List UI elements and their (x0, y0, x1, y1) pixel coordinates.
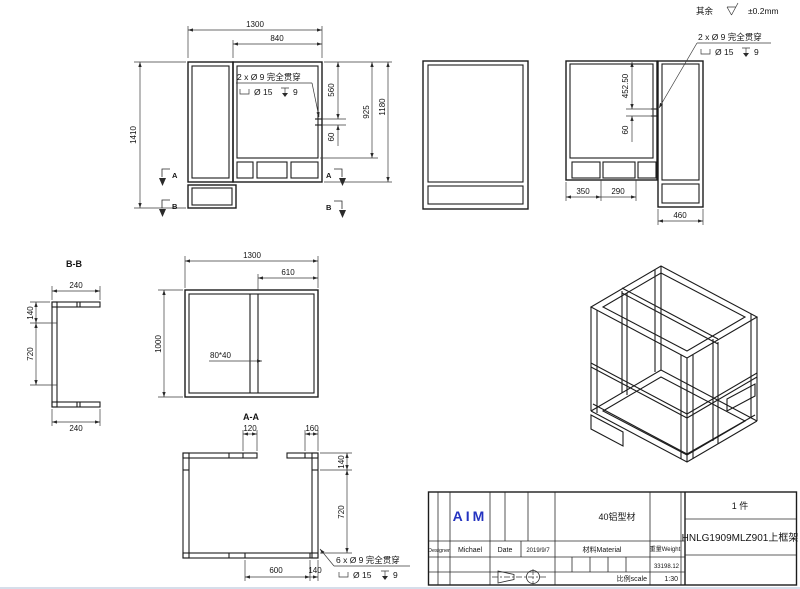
bb-section-linework (52, 302, 100, 407)
dim-side-seg-mid: 290 (611, 187, 625, 196)
bb-section-label: B-B (66, 259, 82, 269)
dim-top-depth: 1000 (154, 335, 163, 353)
isometric-view (591, 266, 757, 462)
scale-label: 比例scale (617, 574, 647, 583)
dim-aa-bottom-span: 600 (269, 566, 283, 575)
side-hole-callout: 2 x Ø 9 完全贯穿 Ø 15 9 (659, 32, 771, 108)
dim-aa-tab-left: 120 (243, 424, 257, 433)
dim-bb-offset-top: 140 (26, 306, 35, 320)
date-value: 2019/9/7 (526, 548, 550, 554)
side-view-linework (566, 61, 703, 207)
dim-front-height-opening: 925 (362, 105, 371, 119)
surface-finish-icon (727, 3, 738, 15)
hole-callout-depth: 9 (754, 47, 759, 57)
dim-bb-arm-top: 240 (69, 281, 83, 290)
cad-drawing-canvas: 其余 ±0.2mm 1300 840 (0, 0, 800, 589)
aa-section-linework (183, 453, 318, 558)
dim-front-height-right: 1180 (378, 98, 387, 116)
hole-callout-cbore: Ø 15 (254, 87, 273, 97)
dim-front-width-opening: 840 (270, 34, 284, 43)
front-view-linework (188, 62, 322, 208)
dim-aa-offset-top: 140 (337, 455, 346, 469)
section-marker-b-right: B (326, 201, 346, 218)
dim-top-profile: 80*40 (210, 351, 231, 360)
scale-value: 1:30 (664, 576, 678, 583)
hole-callout-cbore: Ø 15 (353, 570, 372, 580)
dim-side-hole-top: 452.50 (621, 73, 630, 98)
aa-section-view: A-A 120 160 1 (183, 412, 410, 581)
section-letter-b: B (326, 203, 332, 212)
front-view-dimensions: 1300 840 1410 560 60 925 1180 (129, 20, 392, 208)
material-type: 40铝型材 (598, 511, 635, 522)
counterbore-icon (701, 49, 710, 54)
date-label: Date (498, 547, 513, 554)
company-logo-text: AIM (453, 508, 488, 524)
section-marker-a-left: A (159, 169, 178, 186)
section-letter-a: A (172, 171, 178, 180)
dim-side-seg-left: 350 (576, 187, 590, 196)
top-view: 1300 610 1000 80*40 (154, 251, 318, 397)
bb-section-view: B-B 240 140 720 240 (26, 259, 100, 433)
dim-side-hole-gap: 60 (621, 125, 630, 134)
depth-icon (381, 571, 389, 580)
dim-aa-span: 720 (337, 505, 346, 519)
aa-section-label: A-A (243, 412, 259, 422)
dim-front-height-total: 1410 (129, 126, 138, 144)
front-hole-callout: 2 x Ø 9 完全贯穿 Ø 15 9 (236, 72, 319, 117)
designer-label: Designer (428, 548, 450, 554)
isometric-frame-linework (591, 266, 757, 462)
side-view: 452.50 60 350 290 460 2 x Ø 9 完全贯穿 Ø 15 (566, 32, 771, 225)
part-number: HNLG1909MLZ901上框架 (682, 531, 799, 544)
dim-front-hole-gap: 60 (327, 132, 336, 141)
top-view-dimensions: 1300 610 1000 80*40 (154, 251, 318, 397)
front-view: 1300 840 1410 560 60 925 1180 2 x Ø 9 完全… (129, 20, 392, 218)
hole-callout-line1: 2 x Ø 9 完全贯穿 (698, 32, 762, 42)
dim-side-width-right: 460 (673, 211, 687, 220)
hole-callout-line1: 2 x Ø 9 完全贯穿 (237, 72, 301, 82)
section-letter-b: B (172, 202, 178, 211)
side-view-dimensions: 452.50 60 350 290 460 (566, 62, 703, 225)
title-block: AIM 40铝型材 1 件 HNLG1909MLZ901上框架 Designer… (428, 492, 798, 585)
drawing-sheet: 其余 ±0.2mm 1300 840 (0, 0, 800, 589)
dim-top-width-total: 1300 (243, 251, 261, 260)
section-marker-a-right: A (326, 169, 346, 186)
section-marker-b-left: B (159, 200, 178, 217)
dim-top-width-right: 610 (281, 268, 295, 277)
counterbore-icon (339, 572, 348, 577)
weight-label: 重量Weight (650, 545, 681, 553)
hole-callout-line1: 6 x Ø 9 完全贯穿 (336, 555, 400, 565)
designer-name: Michael (458, 547, 483, 554)
quantity: 1 件 (732, 500, 749, 511)
projection-symbol-icon (492, 569, 548, 585)
dim-bb-span: 720 (26, 347, 35, 361)
general-note-prefix: 其余 (696, 6, 714, 16)
material-label: 材料Material (583, 545, 622, 554)
dim-aa-tab-right: 160 (305, 424, 319, 433)
hole-callout-cbore: Ø 15 (715, 47, 734, 57)
depth-icon (742, 48, 750, 57)
depth-icon (281, 88, 289, 97)
aa-hole-callout: 6 x Ø 9 完全贯穿 Ø 15 9 (320, 549, 410, 580)
general-tolerance-note: 其余 ±0.2mm (696, 3, 779, 16)
middle-view (423, 61, 528, 209)
dim-front-hole-top: 560 (327, 83, 336, 97)
dim-aa-bottom-right: 140 (308, 566, 322, 575)
section-letter-a: A (326, 171, 332, 180)
dim-front-width-total: 1300 (246, 20, 264, 29)
top-view-linework (185, 290, 318, 397)
hole-callout-depth: 9 (293, 87, 298, 97)
dim-bb-arm-bottom: 240 (69, 424, 83, 433)
counterbore-icon (240, 89, 249, 94)
weight-value: 33198.12 (654, 564, 680, 570)
hole-callout-depth: 9 (393, 570, 398, 580)
bb-section-dimensions: 240 140 720 240 (26, 281, 100, 433)
general-note-tolerance: ±0.2mm (748, 6, 779, 16)
